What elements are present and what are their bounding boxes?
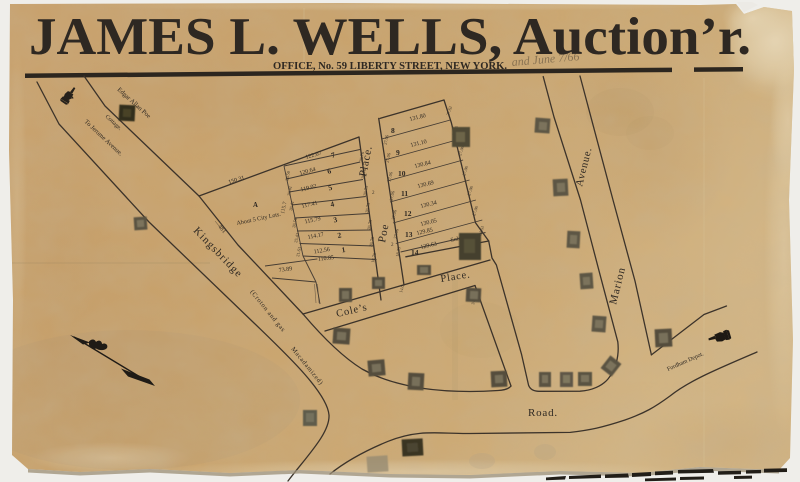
svg-text:14: 14 bbox=[411, 248, 419, 257]
svg-text:Road.: Road. bbox=[528, 407, 558, 419]
svg-text:13: 13 bbox=[405, 230, 413, 239]
svg-text:A: A bbox=[253, 202, 258, 209]
svg-text:11: 11 bbox=[401, 189, 408, 198]
svg-text:9: 9 bbox=[396, 148, 400, 157]
svg-text:JAMES L. WELLS, Auction’r.: JAMES L. WELLS, Auction’r. bbox=[29, 8, 751, 66]
svg-text:12: 12 bbox=[404, 209, 412, 218]
svg-text:8: 8 bbox=[391, 126, 395, 135]
svg-text:10: 10 bbox=[398, 169, 406, 178]
